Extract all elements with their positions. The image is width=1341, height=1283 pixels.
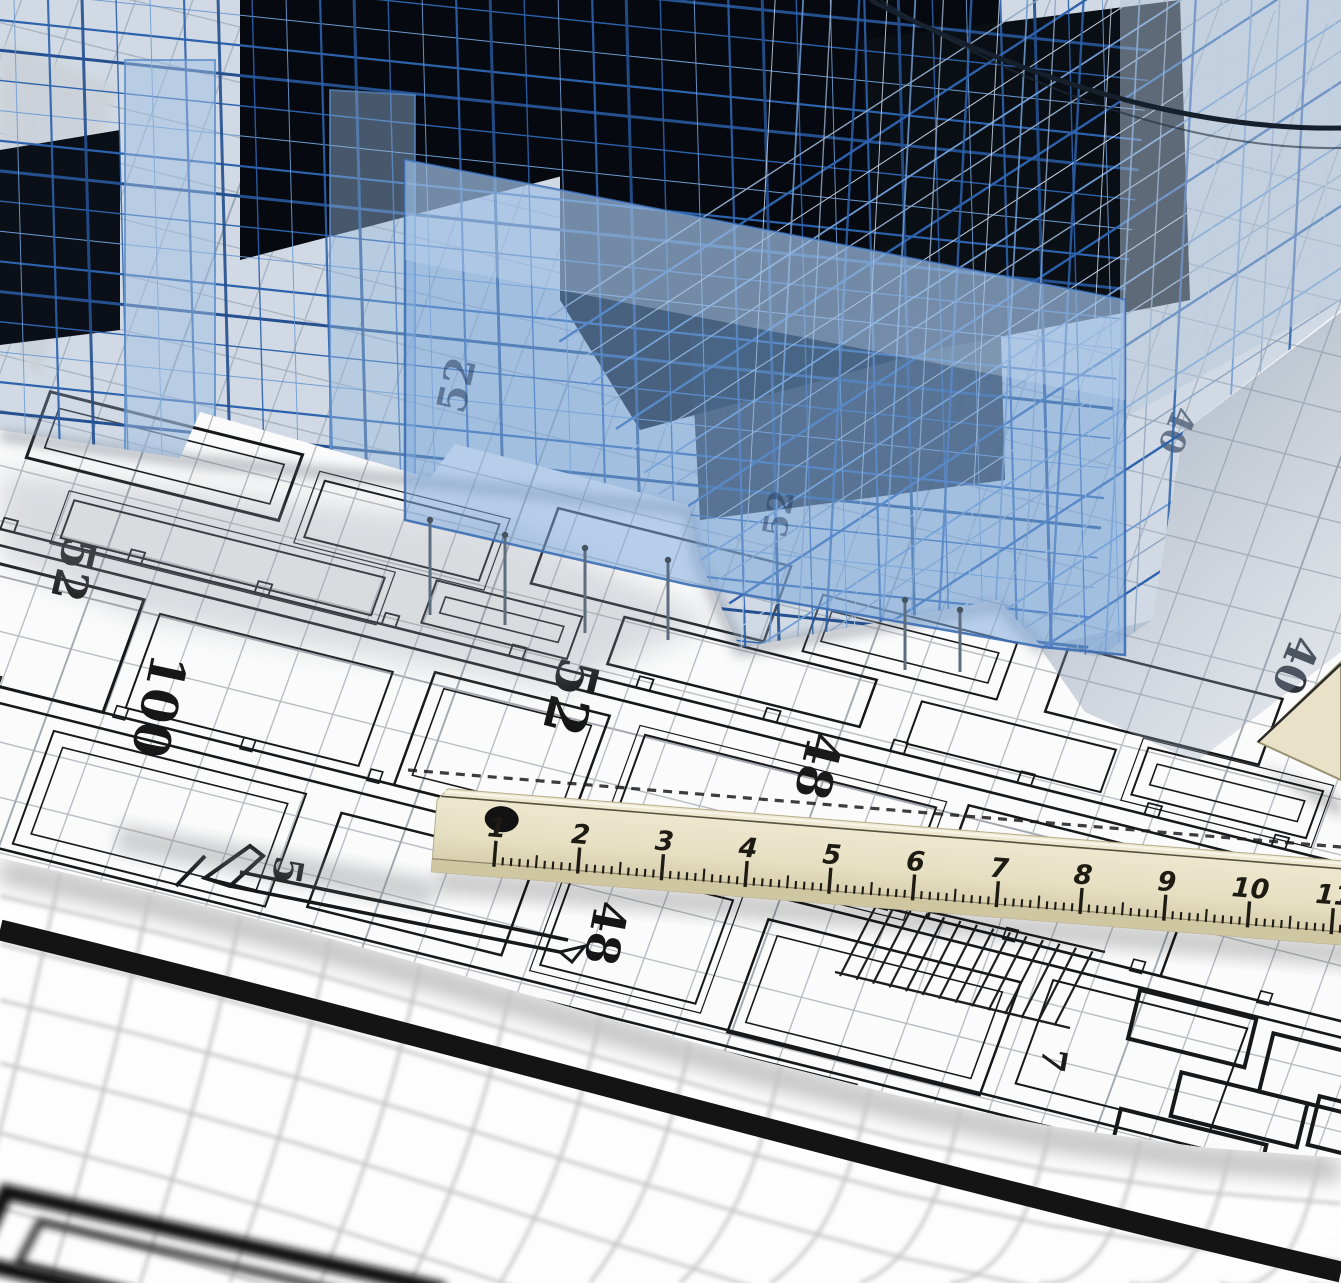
ruler-major-tick <box>913 875 915 901</box>
ruler-minor-tick <box>502 857 503 865</box>
ruler-major-tick <box>661 854 663 880</box>
ruler-minor-tick <box>1072 903 1073 911</box>
ruler-minor-tick <box>1189 913 1190 921</box>
ruler-minor-tick <box>712 874 713 882</box>
ruler-minor-tick <box>1256 918 1257 926</box>
ruler-minor-tick <box>603 866 604 874</box>
ruler-minor-tick <box>770 879 771 887</box>
ruler-minor-tick <box>1147 909 1148 917</box>
ruler-minor-tick <box>628 868 629 876</box>
ruler-minor-tick <box>1005 898 1006 906</box>
ruler-number-2: 2 <box>570 819 591 851</box>
ruler-minor-tick <box>1047 901 1048 909</box>
ruler-number-11: 11 <box>1314 879 1341 913</box>
ruler-minor-tick <box>812 882 813 890</box>
ruler-minor-tick <box>553 861 554 869</box>
ruler-minor-tick <box>921 891 922 899</box>
ruler-minor-tick <box>528 859 529 867</box>
ruler-minor-tick <box>678 872 679 880</box>
ruler-minor-tick <box>1055 902 1056 910</box>
ruler-minor-tick <box>971 895 972 903</box>
ruler-minor-tick <box>544 861 545 869</box>
ruler-minor-tick <box>1114 907 1115 915</box>
ruler-minor-tick <box>569 863 570 871</box>
ruler-minor-tick <box>896 889 897 897</box>
ruler-minor-tick <box>670 871 671 879</box>
ruler-number-1: 1 <box>486 812 507 844</box>
ruler-major-tick <box>1247 901 1249 927</box>
ruler-minor-tick <box>862 886 863 894</box>
ruler-minor-tick <box>1030 900 1031 908</box>
ruler-minor-tick <box>1063 903 1064 911</box>
ruler-minor-tick <box>762 878 763 886</box>
ruler-major-tick <box>494 841 496 867</box>
ruler-minor-tick <box>754 878 755 886</box>
ruler-minor-tick <box>737 876 738 884</box>
ruler-number-3: 3 <box>654 826 675 858</box>
ruler-minor-tick <box>779 880 780 888</box>
ruler-minor-tick <box>904 890 905 898</box>
ruler-minor-tick <box>536 855 537 868</box>
ruler-number-7: 7 <box>989 853 1010 885</box>
ruler-minor-tick <box>1197 913 1198 921</box>
ruler-minor-tick <box>837 884 838 892</box>
ruler-minor-tick <box>586 864 587 872</box>
ruler-number-6: 6 <box>905 846 926 878</box>
ruler-minor-tick <box>871 882 872 895</box>
ruler-minor-tick <box>620 862 621 875</box>
ruler-minor-tick <box>988 897 989 905</box>
ruler-minor-tick <box>1281 920 1282 928</box>
ruler-minor-tick <box>1222 915 1223 923</box>
ruler-minor-tick <box>595 865 596 873</box>
ruler-minor-tick <box>728 876 729 884</box>
ruler-minor-tick <box>653 870 654 878</box>
ruler-minor-tick <box>720 875 721 883</box>
ruler-minor-tick <box>703 869 704 882</box>
ruler-minor-tick <box>955 889 956 902</box>
ruler-major-tick <box>745 861 747 887</box>
ruler-minor-tick <box>611 866 612 874</box>
ruler-minor-tick <box>1122 902 1123 915</box>
ruler-minor-tick <box>846 885 847 893</box>
ruler-minor-tick <box>1105 906 1106 914</box>
ruler-number-10: 10 <box>1231 872 1271 906</box>
ruler-minor-tick <box>1139 909 1140 917</box>
ruler-minor-tick <box>1206 909 1207 922</box>
ruler-minor-tick <box>1097 905 1098 913</box>
ruler-minor-tick <box>946 893 947 901</box>
blueprint-scene: 52100524854840407 5252 1234567891011 <box>0 0 1341 1283</box>
ruler-major-tick <box>1164 895 1166 921</box>
ruler-minor-tick <box>795 881 796 889</box>
ruler-minor-tick <box>1022 899 1023 907</box>
ruler-number-4: 4 <box>737 832 759 864</box>
ruler-minor-tick <box>929 892 930 900</box>
ruler-minor-tick <box>1306 922 1307 930</box>
ruler-number-9: 9 <box>1156 866 1177 898</box>
ruler-minor-tick <box>1155 910 1156 918</box>
ruler-minor-tick <box>1172 911 1173 919</box>
ruler-minor-tick <box>561 862 562 870</box>
ruler-minor-tick <box>519 859 520 867</box>
ruler-minor-tick <box>1264 919 1265 927</box>
ruler-minor-tick <box>1130 908 1131 916</box>
ruler-minor-tick <box>963 894 964 902</box>
ruler-number-5: 5 <box>821 839 842 871</box>
ruler-number-8: 8 <box>1072 859 1093 891</box>
ruler-major-tick <box>996 881 998 907</box>
ruler-minor-tick <box>1214 915 1215 923</box>
ruler-minor-tick <box>980 896 981 904</box>
ruler-minor-tick <box>1231 916 1232 924</box>
ruler-minor-tick <box>879 888 880 896</box>
ruler-minor-tick <box>821 883 822 891</box>
ruler-minor-tick <box>1315 923 1316 931</box>
ruler-minor-tick <box>645 869 646 877</box>
ruler-minor-tick <box>1340 925 1341 933</box>
ruler-minor-tick <box>888 888 889 896</box>
ruler-major-tick <box>1080 888 1082 914</box>
ruler-minor-tick <box>1273 919 1274 927</box>
ruler-major-tick <box>1331 908 1333 934</box>
ruler-minor-tick <box>695 873 696 881</box>
ruler-major-tick <box>829 868 831 894</box>
ruler-minor-tick <box>511 858 512 866</box>
scene-canvas: 52100524854840407 5252 1234567891011 <box>0 0 1341 1283</box>
ruler-minor-tick <box>1239 917 1240 925</box>
ruler-minor-tick <box>787 875 788 888</box>
ruler-minor-tick <box>1089 905 1090 913</box>
ruler-minor-tick <box>687 872 688 880</box>
ruler-minor-tick <box>1298 921 1299 929</box>
ruler-minor-tick <box>938 892 939 900</box>
ruler-minor-tick <box>854 886 855 894</box>
ruler-major-tick <box>578 848 580 874</box>
ruler-minor-tick <box>1289 916 1290 929</box>
ruler-minor-tick <box>636 868 637 876</box>
ruler-minor-tick <box>1181 912 1182 920</box>
ruler-minor-tick <box>1013 899 1014 907</box>
ruler-minor-tick <box>1038 896 1039 909</box>
ruler-minor-tick <box>804 882 805 890</box>
ruler-minor-tick <box>1323 923 1324 931</box>
